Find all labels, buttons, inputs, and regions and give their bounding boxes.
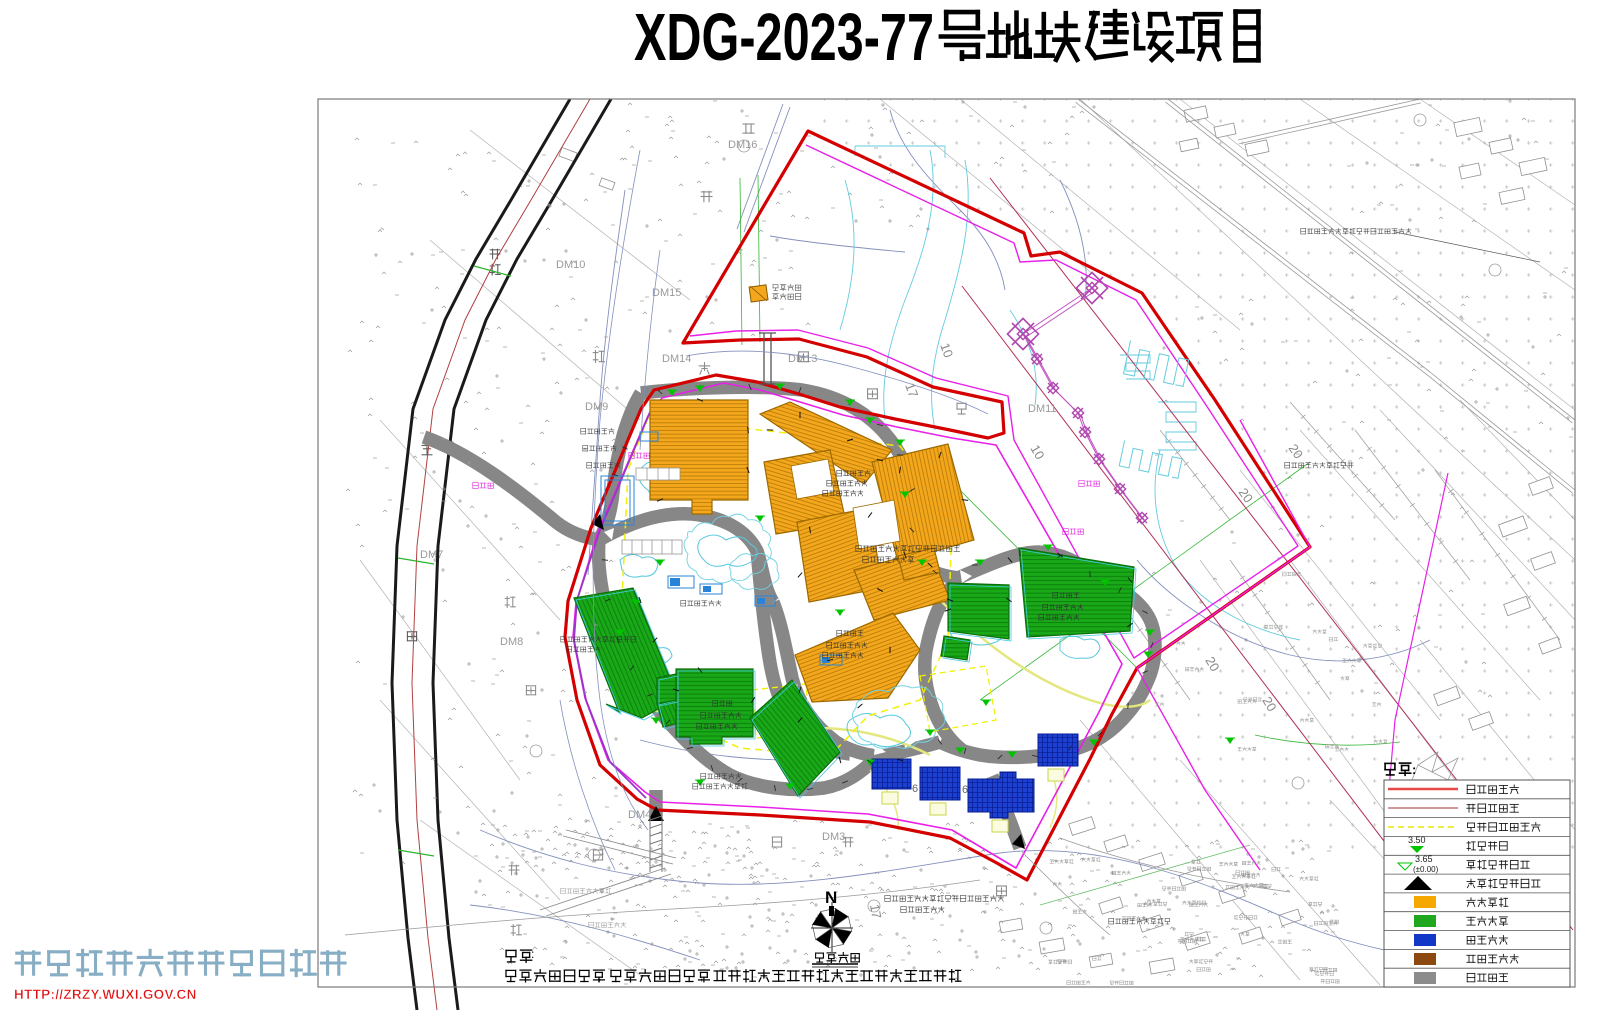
svg-text:DM10: DM10 <box>556 259 585 271</box>
svg-text:,: , <box>598 969 601 983</box>
svg-text:,: , <box>700 969 703 983</box>
svg-text:XDG-2023-77: XDG-2023-77 <box>634 0 934 75</box>
svg-text:6: 6 <box>912 783 918 795</box>
svg-text:DM9: DM9 <box>585 401 608 413</box>
svg-text:N: N <box>825 888 837 907</box>
svg-text:DM14: DM14 <box>662 353 691 365</box>
svg-text:DM15: DM15 <box>652 287 681 299</box>
svg-text:DM7: DM7 <box>420 549 443 561</box>
svg-text::: : <box>1412 762 1416 777</box>
svg-text:DM4: DM4 <box>628 809 651 821</box>
svg-text:3.50: 3.50 <box>1408 835 1426 845</box>
svg-text:HTTP://ZRZY.WUXI.GOV.CN: HTTP://ZRZY.WUXI.GOV.CN <box>14 987 197 1002</box>
svg-text:DM16: DM16 <box>728 139 757 151</box>
svg-text:3.65: 3.65 <box>1415 854 1433 864</box>
svg-text:.: . <box>953 969 956 983</box>
svg-text:DM3: DM3 <box>822 831 845 843</box>
svg-text::: : <box>531 947 534 961</box>
svg-text:DM11: DM11 <box>1028 403 1057 415</box>
svg-text:(±0.00): (±0.00) <box>1413 865 1439 874</box>
svg-text:6: 6 <box>962 784 968 796</box>
svg-text:DM8: DM8 <box>500 636 523 648</box>
